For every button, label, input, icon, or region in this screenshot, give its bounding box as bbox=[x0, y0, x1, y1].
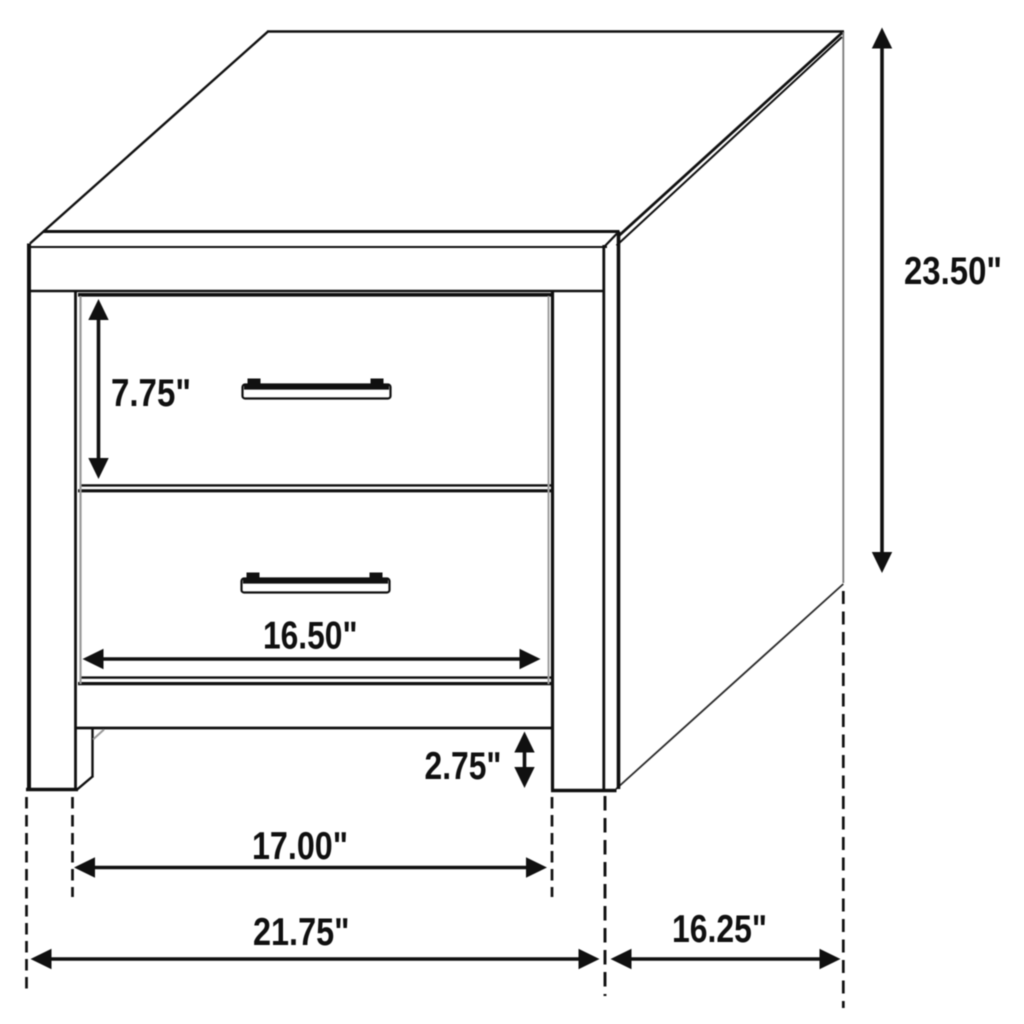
svg-text:2.75": 2.75" bbox=[425, 745, 502, 788]
svg-text:16.25": 16.25" bbox=[672, 908, 767, 951]
svg-text:16.50": 16.50" bbox=[263, 615, 358, 658]
svg-text:21.75": 21.75" bbox=[253, 911, 350, 954]
svg-text:23.50": 23.50" bbox=[904, 250, 1002, 293]
svg-text:17.00": 17.00" bbox=[252, 825, 348, 868]
svg-text:7.75": 7.75" bbox=[111, 372, 191, 415]
